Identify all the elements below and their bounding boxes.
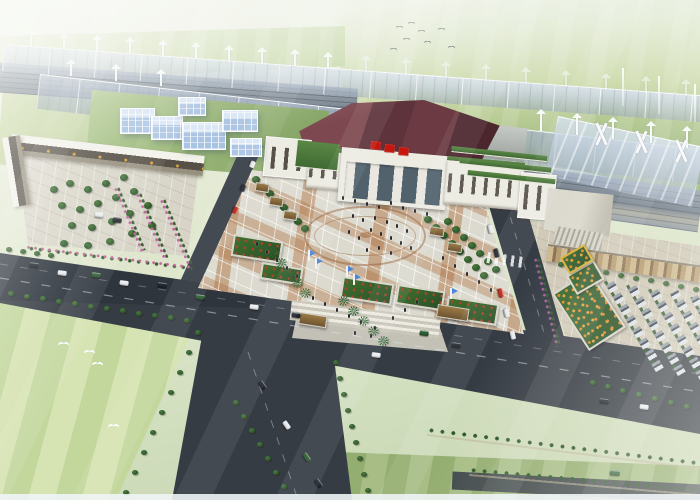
- tree: [40, 296, 46, 301]
- tree: [361, 472, 367, 477]
- person: [426, 212, 428, 216]
- tree: [333, 360, 339, 365]
- tree: [66, 180, 74, 187]
- tree: [452, 226, 460, 233]
- branch-road-south: [172, 320, 352, 500]
- tree: [365, 488, 371, 493]
- signchar: [398, 147, 409, 156]
- person: [286, 266, 288, 270]
- tree: [120, 308, 126, 313]
- person: [414, 209, 416, 213]
- mast: [327, 57, 329, 69]
- bird: [448, 46, 455, 50]
- mast: [605, 78, 607, 90]
- tree: [341, 392, 347, 397]
- planter: [255, 182, 270, 193]
- bird: [390, 48, 397, 52]
- tree: [106, 238, 114, 245]
- tree: [301, 225, 309, 232]
- tree: [136, 311, 142, 316]
- mast-tall: [694, 84, 696, 122]
- tree: [186, 350, 192, 355]
- person: [410, 246, 412, 250]
- tree: [460, 234, 468, 241]
- person: [348, 314, 350, 318]
- cube: [182, 122, 226, 150]
- person: [406, 229, 408, 233]
- mast: [228, 50, 230, 62]
- car: [291, 312, 301, 318]
- mast-tall: [658, 76, 660, 114]
- person: [392, 316, 394, 320]
- person: [466, 272, 468, 276]
- mast-tall: [622, 68, 624, 106]
- flag: [450, 288, 452, 299]
- person: [324, 302, 326, 306]
- mast: [445, 66, 447, 78]
- palm: [292, 278, 303, 288]
- mast: [576, 118, 578, 135]
- terrace: [295, 140, 339, 170]
- mast: [294, 54, 296, 66]
- tree: [678, 284, 684, 289]
- bird: [408, 22, 415, 26]
- tree: [56, 299, 62, 304]
- tree: [648, 278, 654, 283]
- person: [362, 218, 364, 222]
- bird: [396, 26, 403, 30]
- signchar: [384, 144, 395, 153]
- tree: [94, 200, 102, 207]
- flag: [353, 274, 355, 285]
- mast: [261, 52, 263, 64]
- person: [354, 199, 356, 203]
- planter: [283, 210, 298, 221]
- tree: [337, 376, 343, 381]
- aframe: [630, 130, 652, 152]
- person: [416, 300, 418, 304]
- aframe: [670, 139, 692, 161]
- person: [348, 230, 350, 234]
- tree: [168, 315, 174, 320]
- tree: [257, 442, 263, 447]
- plaza-circle-motif: [304, 206, 426, 266]
- car: [112, 217, 122, 223]
- car: [451, 342, 461, 348]
- tree: [492, 266, 500, 273]
- person: [342, 196, 344, 200]
- tree: [636, 392, 642, 397]
- person: [454, 264, 456, 268]
- person: [402, 206, 404, 210]
- tree: [132, 470, 138, 475]
- cube: [120, 108, 155, 134]
- car: [94, 212, 104, 218]
- tree: [88, 304, 94, 309]
- bottom-border: [0, 494, 700, 500]
- tree: [464, 256, 472, 263]
- car: [419, 330, 429, 336]
- mast: [365, 60, 367, 72]
- tree: [50, 186, 58, 193]
- person: [378, 246, 380, 250]
- mast: [645, 81, 647, 93]
- car: [157, 282, 167, 288]
- tree: [668, 400, 674, 405]
- person: [390, 251, 392, 255]
- tree: [476, 250, 484, 257]
- tree: [68, 222, 76, 229]
- tree: [58, 202, 66, 209]
- bird: [403, 38, 410, 42]
- person: [396, 224, 398, 228]
- tree: [468, 242, 476, 249]
- bird: [418, 30, 425, 34]
- tree: [241, 414, 247, 419]
- car: [91, 272, 101, 278]
- cube: [178, 97, 206, 116]
- tree: [480, 272, 488, 279]
- car: [29, 262, 39, 268]
- person: [400, 241, 402, 245]
- gull: [92, 362, 102, 367]
- person: [354, 331, 356, 335]
- tree: [24, 294, 30, 299]
- tree: [6, 247, 12, 252]
- person: [442, 256, 444, 260]
- tree: [168, 390, 174, 395]
- mast: [525, 72, 527, 84]
- mast: [540, 114, 542, 131]
- person: [370, 334, 372, 338]
- person: [366, 202, 368, 206]
- tree: [618, 273, 624, 278]
- person: [360, 320, 362, 324]
- person: [352, 214, 354, 218]
- person: [386, 220, 388, 224]
- tree: [281, 484, 287, 489]
- mast: [405, 63, 407, 75]
- tree: [693, 287, 699, 292]
- person: [478, 280, 480, 284]
- tree: [84, 186, 92, 193]
- tree: [273, 470, 279, 475]
- tree: [104, 306, 110, 311]
- tree: [195, 330, 201, 335]
- car: [249, 304, 259, 310]
- tree: [603, 270, 609, 275]
- person: [490, 288, 492, 292]
- tree: [249, 428, 255, 433]
- tree: [605, 384, 611, 389]
- person: [266, 250, 268, 254]
- person: [378, 205, 380, 209]
- person: [336, 308, 338, 312]
- mast: [70, 64, 72, 76]
- person: [390, 236, 392, 240]
- tree: [444, 218, 452, 225]
- person: [374, 216, 376, 220]
- cube: [151, 116, 183, 140]
- person: [296, 274, 298, 278]
- tree: [84, 242, 92, 249]
- car: [57, 270, 67, 276]
- tree: [349, 424, 355, 429]
- tree: [72, 301, 78, 306]
- tree: [684, 404, 690, 409]
- tree: [633, 276, 639, 281]
- tree: [184, 318, 190, 323]
- gull: [84, 350, 94, 355]
- person: [404, 308, 406, 312]
- mast: [685, 84, 687, 96]
- person: [276, 258, 278, 262]
- person: [380, 232, 382, 236]
- tree: [472, 264, 480, 271]
- tree: [88, 224, 96, 231]
- person: [374, 326, 376, 330]
- flag: [315, 258, 317, 269]
- car: [639, 404, 649, 410]
- tree: [152, 313, 158, 318]
- tree: [424, 216, 432, 223]
- person: [370, 228, 372, 232]
- tree: [663, 281, 669, 286]
- palm: [378, 336, 389, 346]
- station-aerial-rendering: [0, 0, 700, 500]
- tree: [120, 174, 128, 181]
- gull: [108, 424, 118, 429]
- aframe: [590, 122, 612, 144]
- signchar: [370, 141, 381, 150]
- mast: [485, 69, 487, 81]
- tree: [159, 410, 165, 415]
- tree: [345, 408, 351, 413]
- bird: [424, 41, 431, 45]
- mast: [115, 69, 117, 81]
- palm: [300, 288, 311, 298]
- palm: [268, 248, 279, 258]
- person: [312, 296, 314, 300]
- car: [195, 294, 205, 300]
- tree: [357, 456, 363, 461]
- tree: [590, 380, 596, 385]
- mast: [129, 42, 131, 54]
- person: [358, 236, 360, 240]
- car: [371, 352, 381, 358]
- cube: [222, 110, 258, 132]
- mast: [96, 40, 98, 52]
- tree: [60, 240, 68, 247]
- planter: [269, 196, 284, 207]
- car: [599, 398, 609, 404]
- mast: [63, 38, 65, 50]
- tree: [141, 450, 147, 455]
- tree: [102, 180, 110, 187]
- tree: [8, 291, 14, 296]
- mast: [565, 75, 567, 87]
- flag: [308, 250, 310, 261]
- cube: [230, 138, 262, 157]
- tree: [177, 370, 183, 375]
- tree: [652, 396, 658, 401]
- tree: [620, 388, 626, 393]
- mast: [162, 45, 164, 57]
- tree: [150, 430, 156, 435]
- gull: [58, 342, 68, 347]
- person: [366, 248, 368, 252]
- tree: [76, 206, 84, 213]
- car: [119, 280, 129, 286]
- mast: [160, 74, 162, 86]
- flag: [346, 266, 348, 277]
- tree: [265, 456, 271, 461]
- car: [610, 470, 620, 476]
- person: [256, 242, 258, 246]
- person: [390, 201, 392, 205]
- tree: [353, 440, 359, 445]
- mast: [30, 35, 32, 47]
- palm: [338, 296, 349, 306]
- tree: [233, 400, 239, 405]
- bird: [438, 28, 445, 32]
- mast: [195, 47, 197, 59]
- mast: [612, 122, 614, 139]
